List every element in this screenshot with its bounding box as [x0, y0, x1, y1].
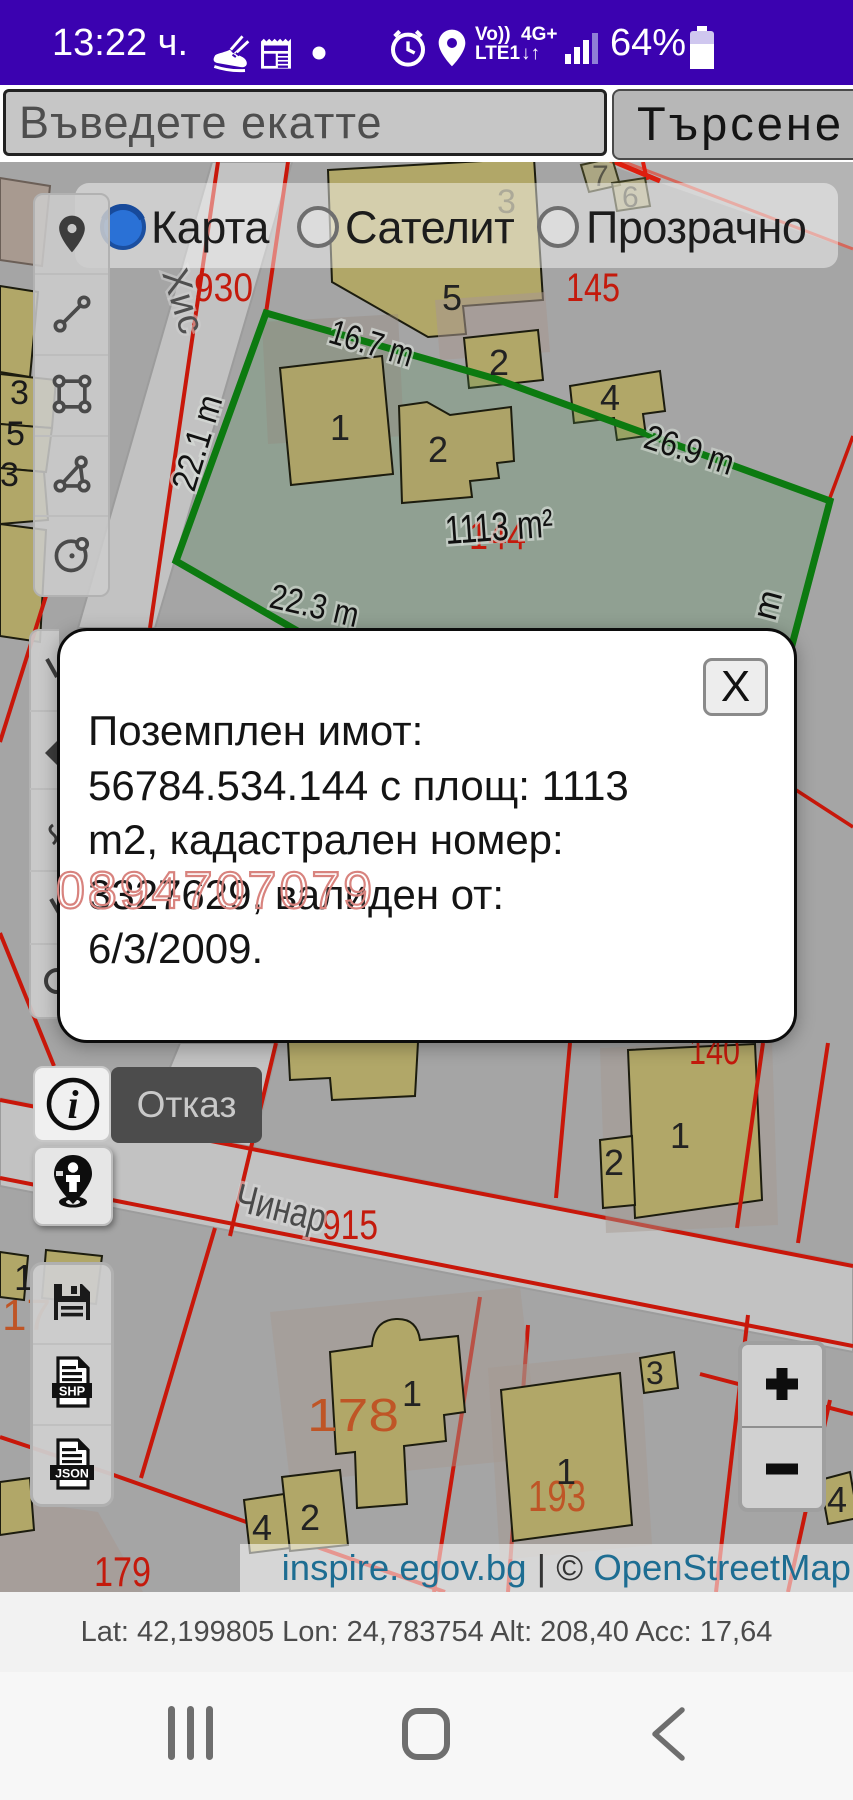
svg-text:179: 179: [94, 1548, 151, 1595]
svg-text:178: 178: [307, 1389, 399, 1441]
svg-text:2: 2: [489, 342, 509, 383]
svg-text:4: 4: [600, 377, 620, 418]
svg-text:3: 3: [646, 1355, 664, 1391]
svg-text:2: 2: [604, 1142, 624, 1183]
svg-text:1: 1: [670, 1115, 690, 1156]
svg-text:3: 3: [0, 456, 19, 494]
svg-text:4: 4: [827, 1479, 847, 1520]
svg-text:inspire.egov.bg | © OpenStreet: inspire.egov.bg | © OpenStreetMap: [282, 1547, 851, 1588]
svg-text:915: 915: [322, 1201, 378, 1248]
svg-text:1: 1: [556, 1451, 576, 1492]
svg-text:5: 5: [442, 277, 462, 318]
svg-text:i: i: [67, 1082, 78, 1127]
svg-text:1113 m²: 1113 m²: [444, 502, 555, 553]
svg-text:3: 3: [10, 374, 29, 412]
svg-text:4: 4: [252, 1507, 272, 1548]
svg-text:1: 1: [402, 1373, 422, 1414]
svg-text:145: 145: [566, 266, 620, 310]
svg-text:2: 2: [300, 1497, 320, 1538]
svg-text:JSON: JSON: [55, 1466, 89, 1480]
svg-text:1: 1: [330, 407, 350, 448]
svg-text:2: 2: [428, 429, 448, 470]
svg-text:5: 5: [6, 415, 25, 453]
svg-text:SHP: SHP: [59, 1383, 86, 1398]
